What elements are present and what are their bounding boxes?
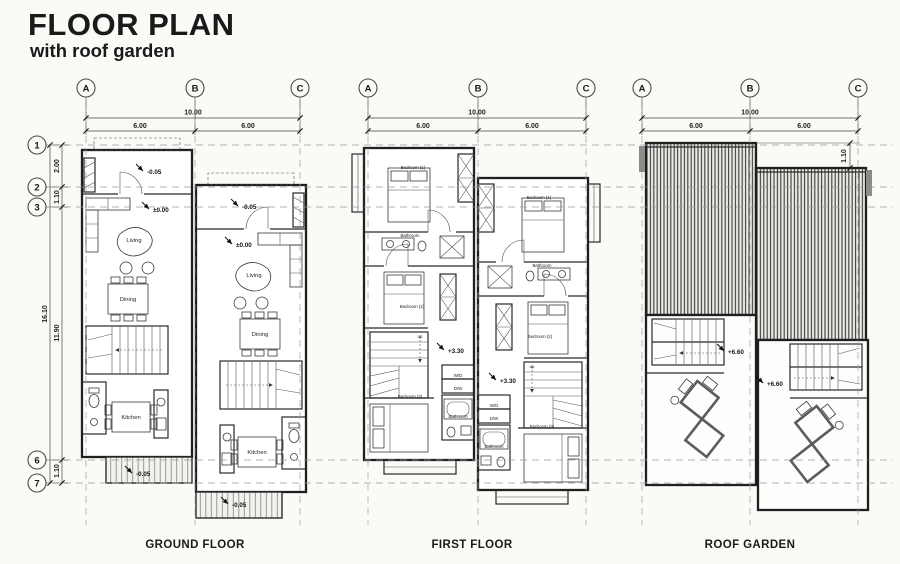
grid-bubble-a: A [639,84,646,95]
level-roof: +6.60 [767,381,783,388]
room-label-wd: W/D [490,403,499,408]
level-deck: -0.05 [136,471,151,478]
grid-bubble-6: 6 [34,456,39,467]
grid-bubble-b: B [747,84,754,95]
grid-bubble-b: B [192,84,199,95]
dim-row-1-2: 2.00 [54,159,61,173]
title-subtitle: with roof garden [29,40,175,61]
room-label-bedroom1: Bedroom (1) [401,165,426,170]
level-deck: -0.05 [242,204,257,211]
roof-panel-right [756,168,866,340]
roof-garden-unit-right [758,340,868,510]
floor-plan-sheet: A B C 10.00 6.00 6.00 A B C 10.00 6.00 6… [0,0,900,564]
caption-ground-floor: GROUND FLOOR [145,539,245,551]
grid-bubble-3: 3 [34,203,39,214]
dim-width-total: 10.00 [468,110,486,117]
dim-bay-right: 6.00 [525,123,539,130]
ground-floor-unit-right [196,173,306,518]
dim-row-3-6: 11.90 [54,324,61,341]
level-ground: ±0.00 [153,207,169,214]
roof-garden-plan [639,143,872,510]
ground-floor-unit-left [82,138,192,483]
caption-roof-garden: ROOF GARDEN [705,539,796,551]
grid-bubble-b: B [475,84,482,95]
stair-up-label: up [418,334,423,339]
room-label-bedroom2: Bedroom (2) [528,334,553,339]
dim-row-6-7: 1.10 [54,464,61,478]
grid-bubble-c: C [297,84,304,95]
dim-bay-right: 6.00 [241,123,255,130]
first-floor-unit-right [478,178,600,504]
dim-roof-offset: 1.10 [841,149,848,163]
room-label-bathroom: Bathroom [400,233,419,238]
room-label-dw: D/W [490,416,499,421]
title-main: FLOOR PLAN [28,7,235,42]
room-label-wd: W/D [454,373,463,378]
dim-bay-left: 6.00 [133,123,147,130]
dim-width-total: 10.00 [184,110,202,117]
room-label-bathroom: Bathroom [484,444,503,449]
room-label-dining: Dining [120,297,136,303]
room-label-bedroom3: Bedroom (3) [530,424,555,429]
grid-bubble-c: C [855,84,862,95]
dim-bay-left: 6.00 [689,123,703,130]
roof-panel-left [646,143,756,315]
dim-row-2-3: 1.10 [54,190,61,204]
grid-bubble-2: 2 [34,183,39,194]
room-label-bathroom: Bathroom [532,263,551,268]
room-label-bedroom2: Bedroom (2) [400,304,425,309]
roof-garden-unit-left [646,315,756,485]
room-label-kitchen: Kitchen [247,450,266,456]
room-label-bathroom: Bathroom [448,414,467,419]
grid-bubble-c: C [583,84,590,95]
caption-first-floor: FIRST FLOOR [431,539,512,551]
roof-wall-pier-right [866,170,872,196]
dim-height-total: 16.10 [42,305,49,323]
room-label-living: Living [246,273,261,279]
level-roof: +6.60 [728,349,744,356]
first-floor-unit-left [352,148,474,474]
grid-bubble-a: A [83,84,90,95]
level-deck: -0.05 [147,169,162,176]
grid-bubble-7: 7 [34,479,39,490]
level-first: +3.30 [448,348,464,355]
grid-bubble-a: A [365,84,372,95]
dim-width-total: 10.00 [741,110,759,117]
room-label-kitchen: Kitchen [121,415,140,421]
stair-up-label: up [530,364,535,369]
level-first: +3.30 [500,378,516,385]
grid-bubble-1: 1 [34,141,40,152]
room-label-bedroom1: Bedroom (1) [527,195,552,200]
level-ground: ±0.00 [236,242,252,249]
room-label-living: Living [126,238,141,244]
dim-bay-right: 6.00 [797,123,811,130]
room-label-dining: Dining [252,332,268,338]
room-label-dw: D/W [454,386,463,391]
level-deck: -0.05 [232,502,247,509]
dim-bay-left: 6.00 [416,123,430,130]
room-label-bedroom3: Bedroom (3) [398,394,423,399]
